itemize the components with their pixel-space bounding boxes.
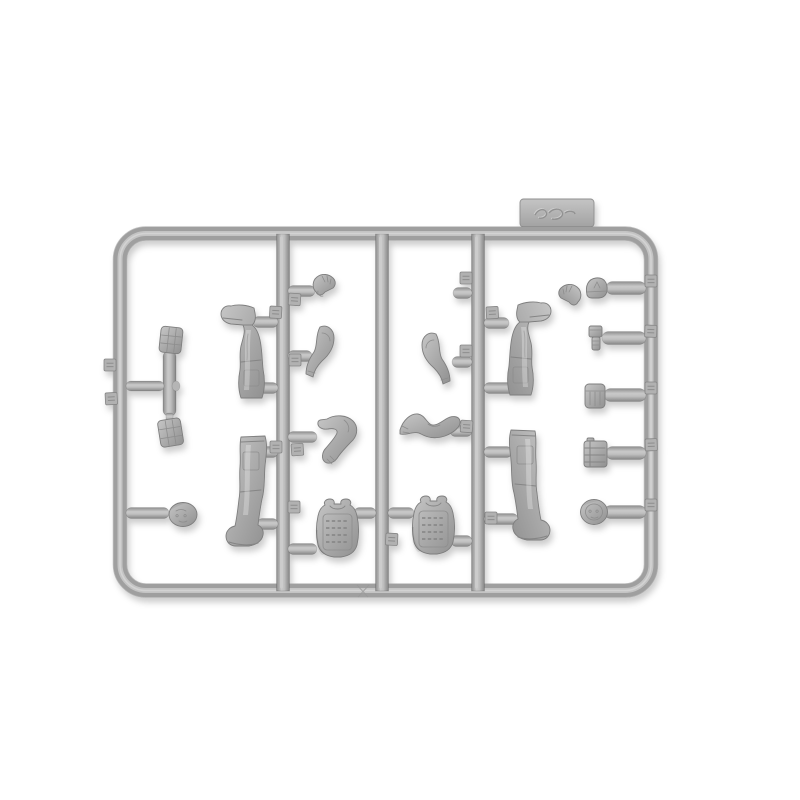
part-leg-upper-right [508,302,551,395]
part-pouch-bottom-left [157,417,184,447]
part-vest-right [412,496,455,554]
part-arm-elbow-left [318,416,357,464]
part-pouch-top-left [159,326,184,354]
part-head-left [169,503,197,527]
part-glove-right [559,284,581,305]
sprue-photo [0,0,800,800]
sprue [104,199,657,597]
part-radio-right [584,438,607,467]
brand-logo-tab [520,199,594,227]
part-glove-left [313,274,335,296]
part-leg-lower-right [509,430,550,540]
part-leg-lower-left [226,436,267,546]
part-pouch-right [585,384,605,408]
part-flashlight-right [589,326,602,350]
part-vest-left [316,499,359,557]
part-head-right [581,500,608,525]
part-arm-curved-right [422,333,450,384]
part-helmet-right [586,278,607,298]
product-photo [0,0,800,800]
runner-t-left [163,344,180,421]
